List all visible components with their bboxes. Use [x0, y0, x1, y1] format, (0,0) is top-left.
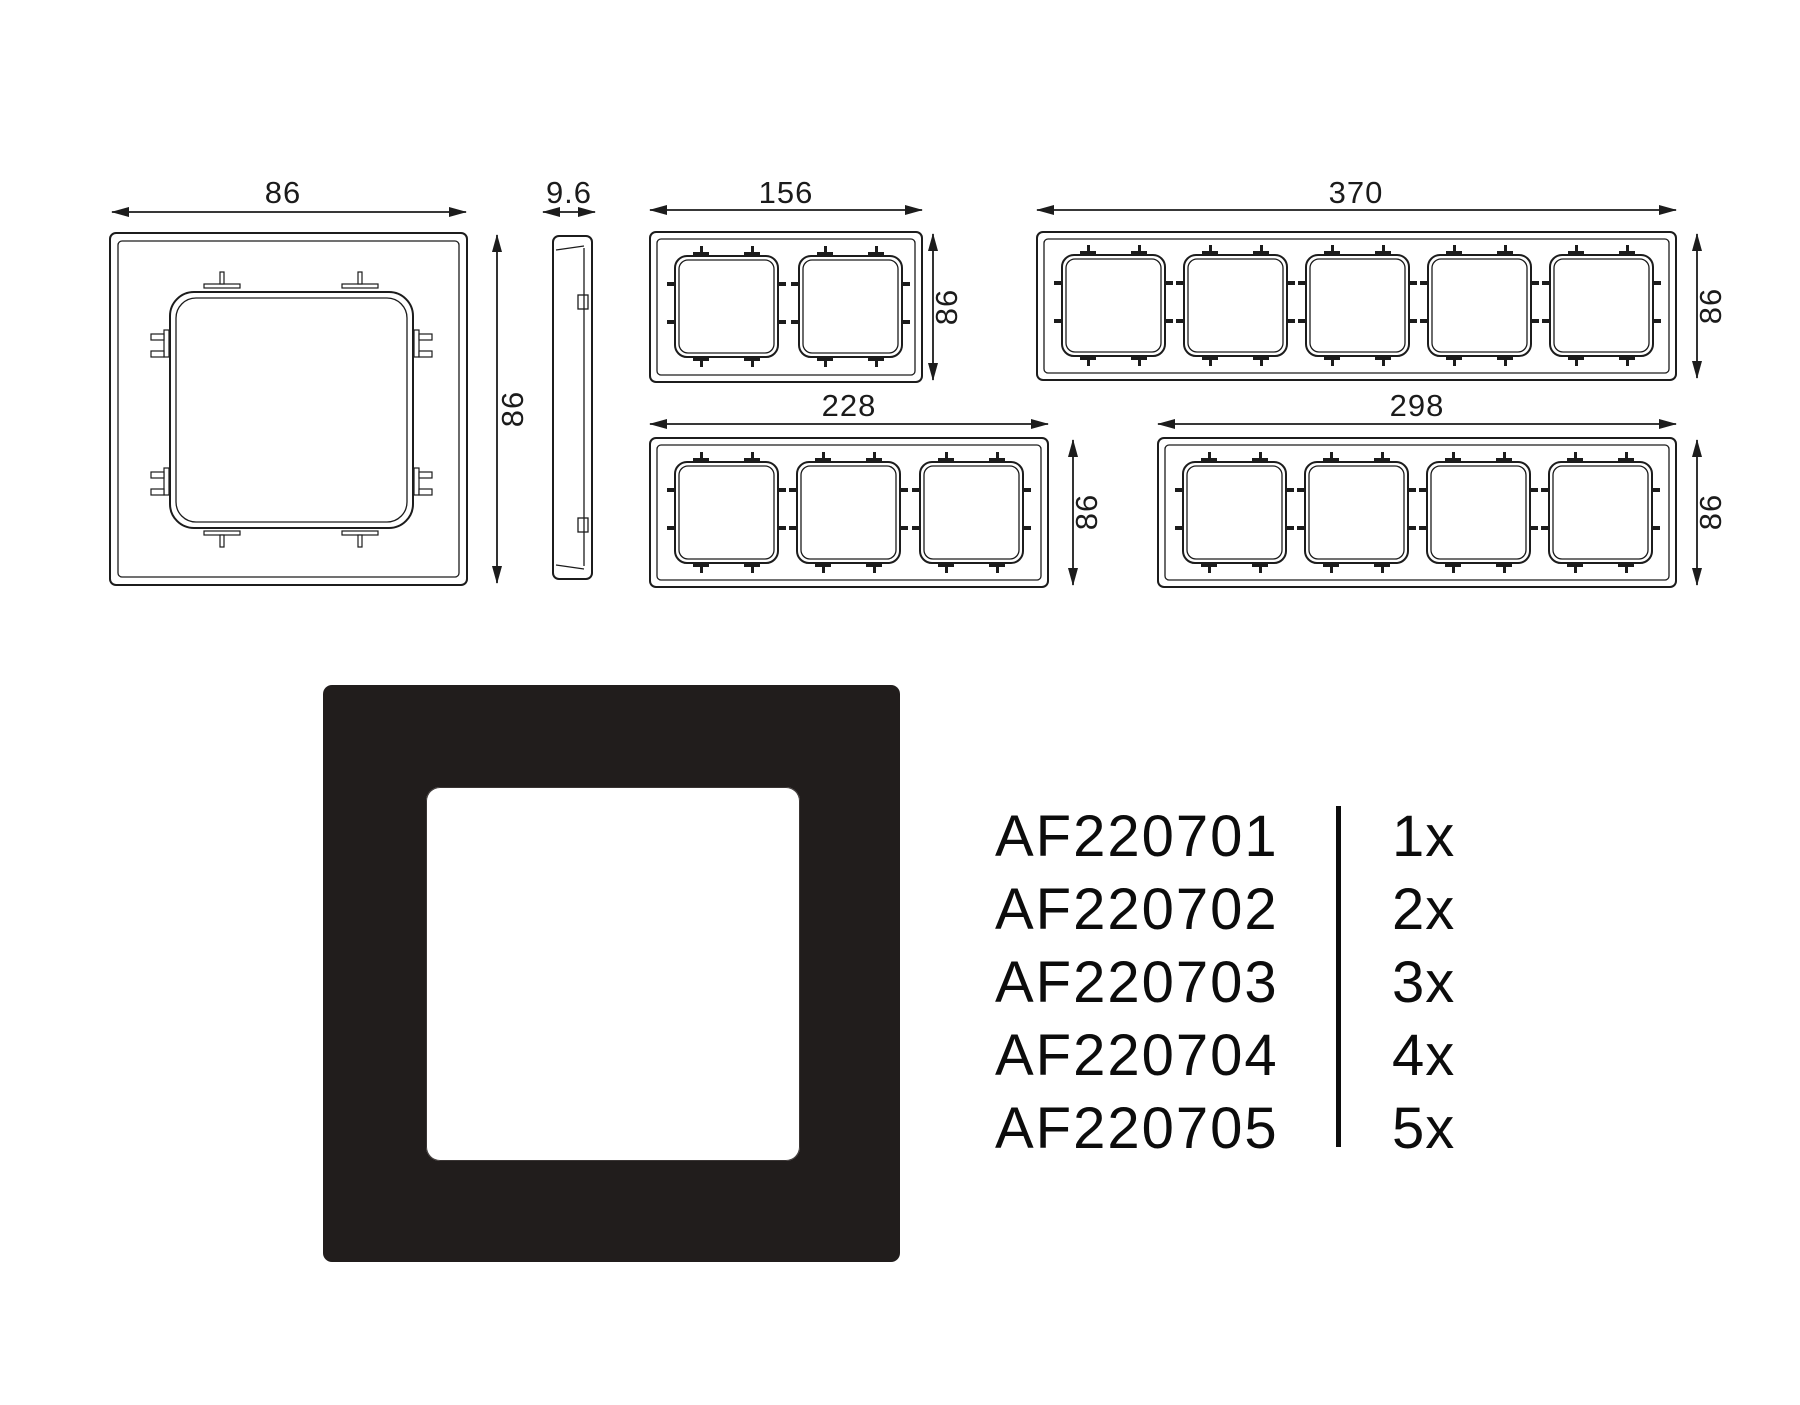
part-code: AF220703 [995, 949, 1336, 1016]
dim-three-gang-width: 228 [822, 388, 877, 423]
part-code: AF220704 [995, 1022, 1336, 1089]
part-row: AF220701 1x [995, 800, 1595, 873]
dim-two-gang-height: 86 [929, 289, 964, 325]
part-code: AF220701 [995, 803, 1336, 870]
drawing-two-gang: 156 86 [650, 175, 964, 382]
dim-three-gang-height: 86 [1069, 494, 1104, 530]
part-qty: 5x [1336, 1095, 1455, 1162]
dim-one-gang-height: 86 [495, 391, 530, 427]
part-row: AF220703 3x [995, 946, 1595, 1019]
part-row: AF220704 4x [995, 1019, 1595, 1092]
dim-one-gang-width: 86 [265, 175, 301, 210]
part-row: AF220705 5x [995, 1092, 1595, 1165]
product-photo-frame [323, 685, 900, 1262]
part-qty: 1x [1336, 803, 1455, 870]
dim-five-gang-width: 370 [1329, 175, 1384, 210]
drawing-three-gang: 228 86 [650, 388, 1104, 587]
part-qty: 2x [1336, 876, 1455, 943]
part-code: AF220705 [995, 1095, 1336, 1162]
part-row: AF220702 2x [995, 873, 1595, 946]
technical-drawings: 86 86 9.6 156 86 [0, 0, 1800, 1400]
dim-four-gang-height: 86 [1693, 494, 1728, 530]
dim-side-thickness: 9.6 [546, 175, 592, 210]
part-qty: 4x [1336, 1022, 1455, 1089]
dim-two-gang-width: 156 [759, 175, 814, 210]
drawing-four-gang: 298 86 [1158, 388, 1728, 587]
part-list: AF220701 1x AF220702 2x AF220703 3x AF22… [995, 800, 1595, 1165]
product-photo-window [426, 787, 800, 1161]
part-code: AF220702 [995, 876, 1336, 943]
drawing-five-gang: 370 86 [1037, 175, 1728, 380]
drawing-side-view: 9.6 [543, 175, 595, 579]
datasheet: 86 86 9.6 156 86 [0, 0, 1800, 1400]
dim-four-gang-width: 298 [1390, 388, 1445, 423]
drawing-one-gang-front: 86 86 [110, 175, 530, 585]
part-qty: 3x [1336, 949, 1455, 1016]
dim-five-gang-height: 86 [1693, 288, 1728, 324]
